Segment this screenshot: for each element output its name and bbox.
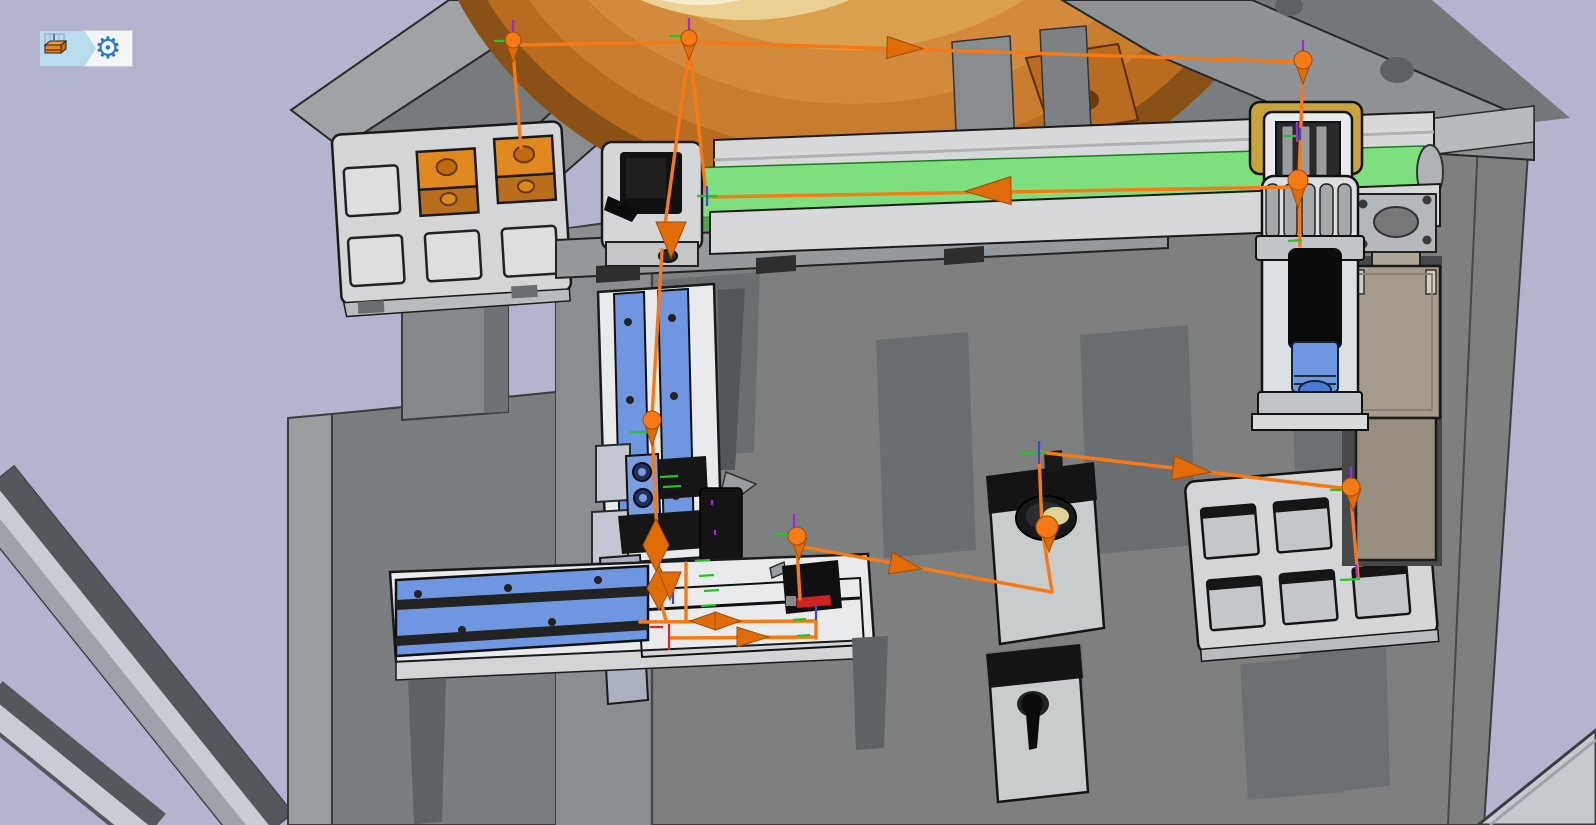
waypoint-sphere[interactable] [643,411,661,429]
orange-workpiece-2[interactable] [494,136,556,203]
axis-tick [701,605,716,606]
waypoint-sphere[interactable] [1288,170,1308,190]
machine-3d-icon [40,31,70,58]
axis-tick [1288,240,1302,241]
waypoint-sphere[interactable] [1294,51,1312,69]
axis-tick [704,590,719,591]
toolbar: ⚙ [40,31,140,66]
left-pallet-tray[interactable] [332,121,573,317]
tray-pocket[interactable] [344,165,401,216]
axis-tick [660,476,678,477]
gripper-fingers [1266,184,1351,238]
z-rail-right[interactable] [658,289,694,542]
waypoint-sphere[interactable] [1036,516,1058,538]
cad-viewport[interactable]: ⚙ [0,0,1596,825]
waypoint-sphere[interactable] [505,32,521,48]
axis-tick [1340,579,1360,580]
table-leg [852,636,888,750]
axis-tick [699,575,714,576]
knob [1021,693,1043,715]
waypoint-sphere[interactable] [681,30,697,46]
axis-tick [793,619,806,620]
axis-tick [695,560,710,561]
orange-workpiece-1[interactable] [417,148,479,215]
tray-pocket[interactable] [425,230,482,281]
motor-body-lower [1356,418,1436,560]
tray-pocket[interactable] [502,226,559,277]
model-view-button[interactable] [40,31,96,66]
axis-tick [1356,564,1357,577]
gear-icon: ⚙ [95,33,122,65]
x-slide[interactable] [396,566,648,656]
axis-tick [797,635,810,636]
conveyor-left-cap[interactable] [602,142,702,266]
bolt-hole [1380,57,1414,83]
table-leg [408,678,446,824]
waypoint-sphere[interactable] [1342,478,1360,496]
knob-station[interactable] [986,644,1088,802]
scene-3d[interactable] [0,0,1596,825]
gripper-blue-tube [1292,342,1338,399]
tray-pocket[interactable] [348,235,405,286]
base-skirt-strip [288,414,332,825]
pick-station[interactable] [1250,102,1368,430]
axis-tick [663,486,681,487]
gripper-cylinder [1288,248,1342,350]
waypoint-sphere[interactable] [788,527,806,545]
